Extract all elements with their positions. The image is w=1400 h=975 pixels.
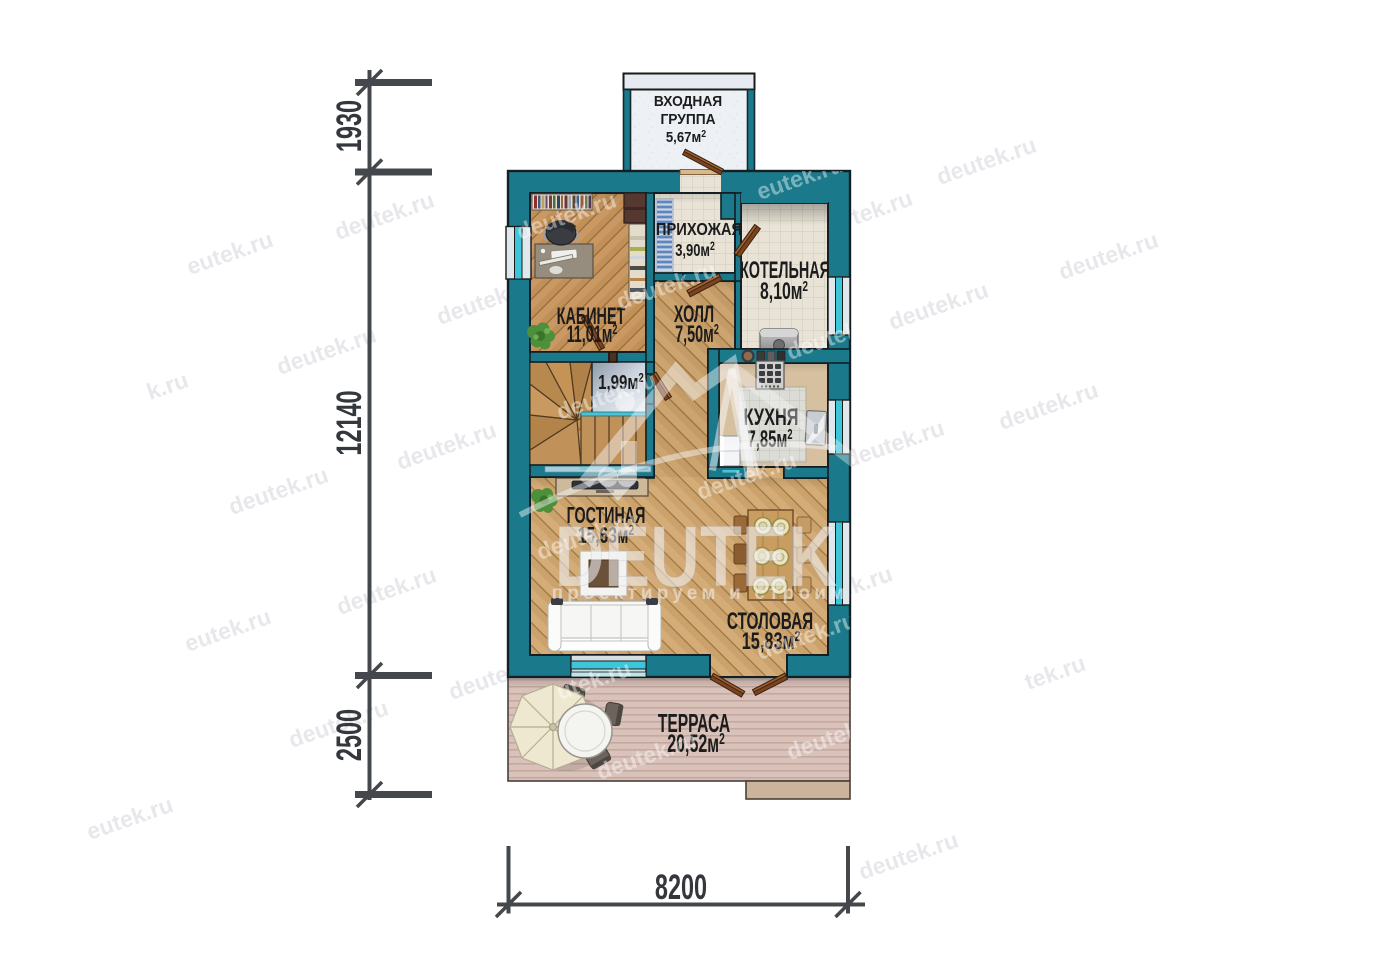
- svg-text:проектируем и строим: проектируем и строим: [552, 583, 849, 604]
- svg-text:ГРУППА: ГРУППА: [660, 111, 715, 127]
- svg-text:1930: 1930: [330, 100, 369, 152]
- svg-text:8200: 8200: [655, 868, 707, 907]
- svg-text:2500: 2500: [330, 709, 369, 761]
- svg-text:12140: 12140: [330, 390, 369, 455]
- svg-text:ВХОДНАЯ: ВХОДНАЯ: [654, 93, 722, 109]
- svg-text:11,01м2: 11,01м2: [567, 321, 618, 348]
- svg-text:5,67м2: 5,67м2: [666, 127, 706, 145]
- svg-text:7,50м2: 7,50м2: [675, 321, 719, 348]
- svg-text:ПРИХОЖАЯ: ПРИХОЖАЯ: [656, 220, 742, 240]
- svg-text:8,10м2: 8,10м2: [760, 278, 808, 305]
